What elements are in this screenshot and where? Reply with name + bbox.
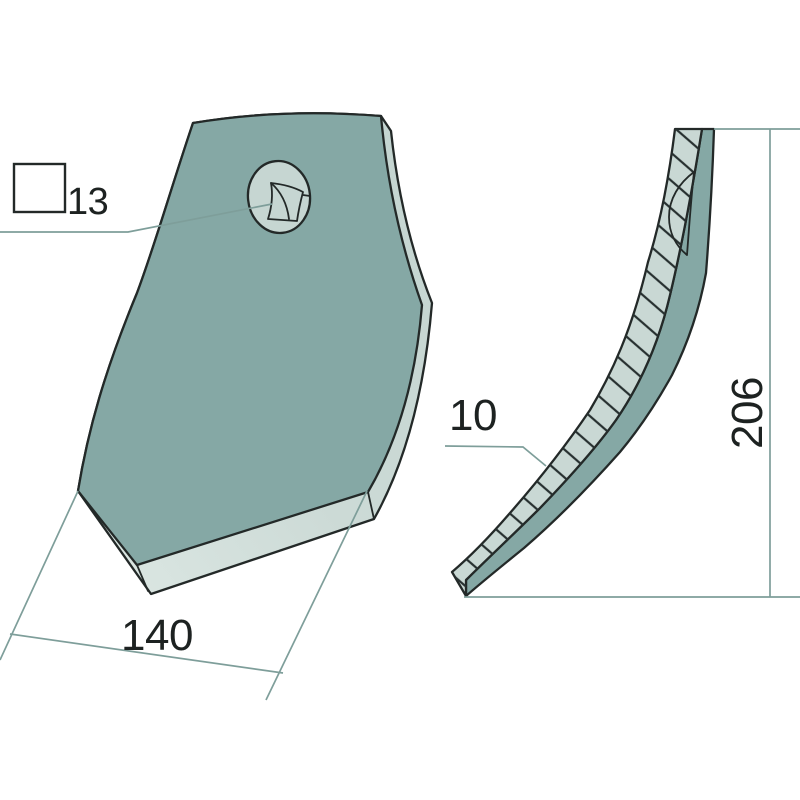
thickness-leader-line <box>445 446 546 466</box>
technical-drawing-page: 13 140 10 206 <box>0 0 800 800</box>
side-view <box>452 129 714 596</box>
square-hole-symbol <box>14 164 65 212</box>
width-dimension-label: 140 <box>121 611 193 660</box>
thickness-dimension-label: 10 <box>449 391 497 440</box>
blade-drawing: 13 140 10 206 <box>0 0 800 800</box>
square-hole-dimension-label: 13 <box>67 181 108 223</box>
dimension-thickness: 10 <box>445 391 546 466</box>
front-view <box>78 113 432 594</box>
square-hole-tick <box>303 195 310 196</box>
length-dimension-label: 206 <box>723 377 772 449</box>
